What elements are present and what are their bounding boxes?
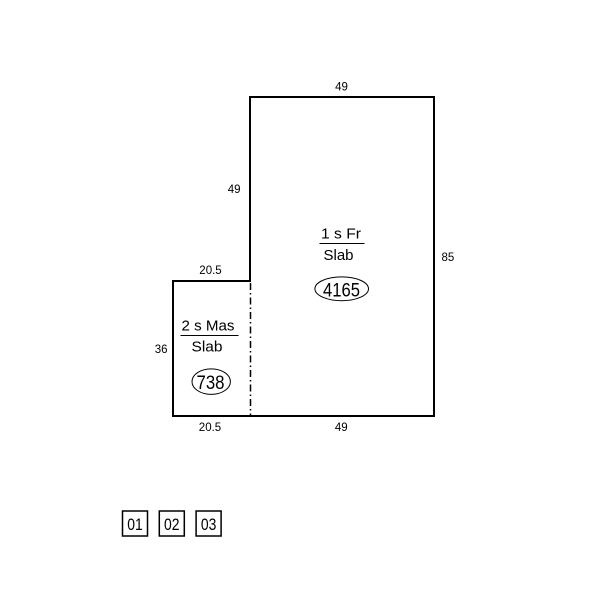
svg-text:49: 49 — [335, 82, 348, 94]
svg-text:20.5: 20.5 — [199, 422, 221, 434]
svg-text:Slab: Slab — [323, 247, 353, 264]
svg-text:36: 36 — [155, 344, 168, 356]
svg-text:20.5: 20.5 — [199, 265, 221, 277]
svg-text:738: 738 — [197, 373, 225, 394]
svg-text:4165: 4165 — [323, 280, 360, 301]
svg-text:1 s Fr: 1 s Fr — [321, 226, 361, 243]
svg-text:49: 49 — [228, 184, 241, 196]
svg-text:Slab: Slab — [192, 339, 223, 356]
svg-text:49: 49 — [335, 422, 348, 434]
svg-text:01: 01 — [127, 515, 143, 534]
svg-text:85: 85 — [442, 252, 455, 264]
svg-text:2 s Mas: 2 s Mas — [182, 318, 235, 335]
svg-text:03: 03 — [201, 515, 217, 534]
svg-text:02: 02 — [164, 515, 180, 534]
